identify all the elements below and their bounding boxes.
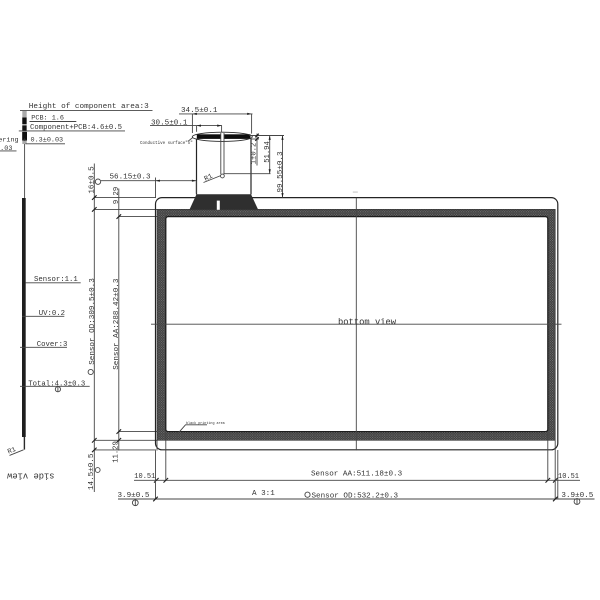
- svg-text:Cover:3: Cover:3: [37, 341, 68, 349]
- svg-text:30.5±0.1: 30.5±0.1: [151, 119, 188, 127]
- svg-text:Sensor AA:288.42±0.3: Sensor AA:288.42±0.3: [113, 278, 121, 370]
- svg-text:covering +: covering +: [0, 136, 27, 144]
- svg-text:Conductive surface"x": Conductive surface"x": [140, 141, 193, 146]
- svg-text:56.15±0.3: 56.15±0.3: [110, 173, 151, 181]
- svg-text:Sensor AA:511.18±0.3: Sensor AA:511.18±0.3: [311, 471, 403, 479]
- svg-text:51.94: 51.94: [264, 141, 272, 163]
- svg-text:99.55±0.3: 99.55±0.3: [277, 151, 285, 192]
- svg-text:±0.03: ±0.03: [0, 145, 12, 153]
- svg-text:9.29: 9.29: [113, 187, 121, 204]
- svg-text:1±0.2: 1±0.2: [250, 143, 258, 165]
- svg-text:side view: side view: [6, 471, 54, 481]
- svg-text:black printing area: black printing area: [186, 421, 225, 426]
- svg-text:Height of component area:3: Height of component area:3: [29, 103, 149, 111]
- svg-text:16±0.5: 16±0.5: [89, 166, 97, 194]
- svg-text:11.29: 11.29: [113, 441, 121, 463]
- svg-text:Sensor OD:532.2±0.3: Sensor OD:532.2±0.3: [312, 492, 399, 500]
- svg-text:3.9±0.5: 3.9±0.5: [118, 492, 150, 500]
- svg-text:10.51: 10.51: [134, 473, 155, 481]
- svg-text:14.5±0.5: 14.5±0.5: [88, 453, 96, 490]
- svg-text:A 3:1: A 3:1: [252, 490, 275, 498]
- svg-text:10.51: 10.51: [558, 473, 579, 481]
- svg-text:Sensor OD:309.5±0.3: Sensor OD:309.5±0.3: [89, 278, 97, 365]
- svg-text:bottom view: bottom view: [338, 318, 397, 328]
